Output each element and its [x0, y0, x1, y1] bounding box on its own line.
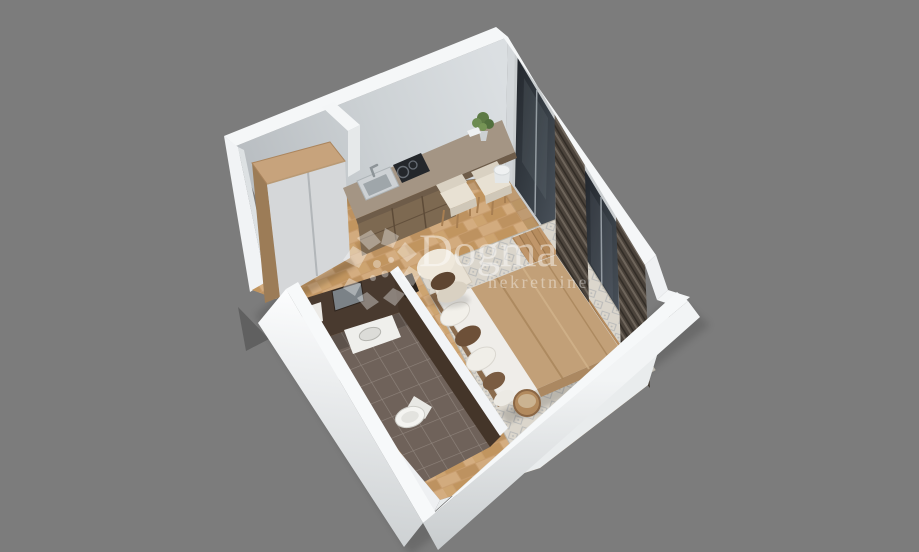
wall-stub-face	[348, 125, 360, 177]
floor-plan-render: Dogma nekretnine	[0, 0, 919, 552]
screenshot: Dogma nekretnine	[0, 0, 919, 552]
watermark-brand: Dogma	[419, 225, 558, 277]
logo-dot	[373, 260, 381, 268]
side-table-tray	[518, 394, 536, 408]
logo-dot	[388, 257, 394, 263]
side-table	[513, 390, 541, 416]
logo-dot	[395, 268, 400, 273]
stool-top	[494, 165, 510, 175]
plant-leaves	[479, 123, 487, 131]
chair-leg	[492, 199, 493, 215]
watermark-subtitle: nekretnine	[488, 272, 589, 292]
stool-towels	[494, 165, 510, 183]
logo-dot	[370, 275, 376, 281]
logo-dot	[382, 271, 389, 278]
